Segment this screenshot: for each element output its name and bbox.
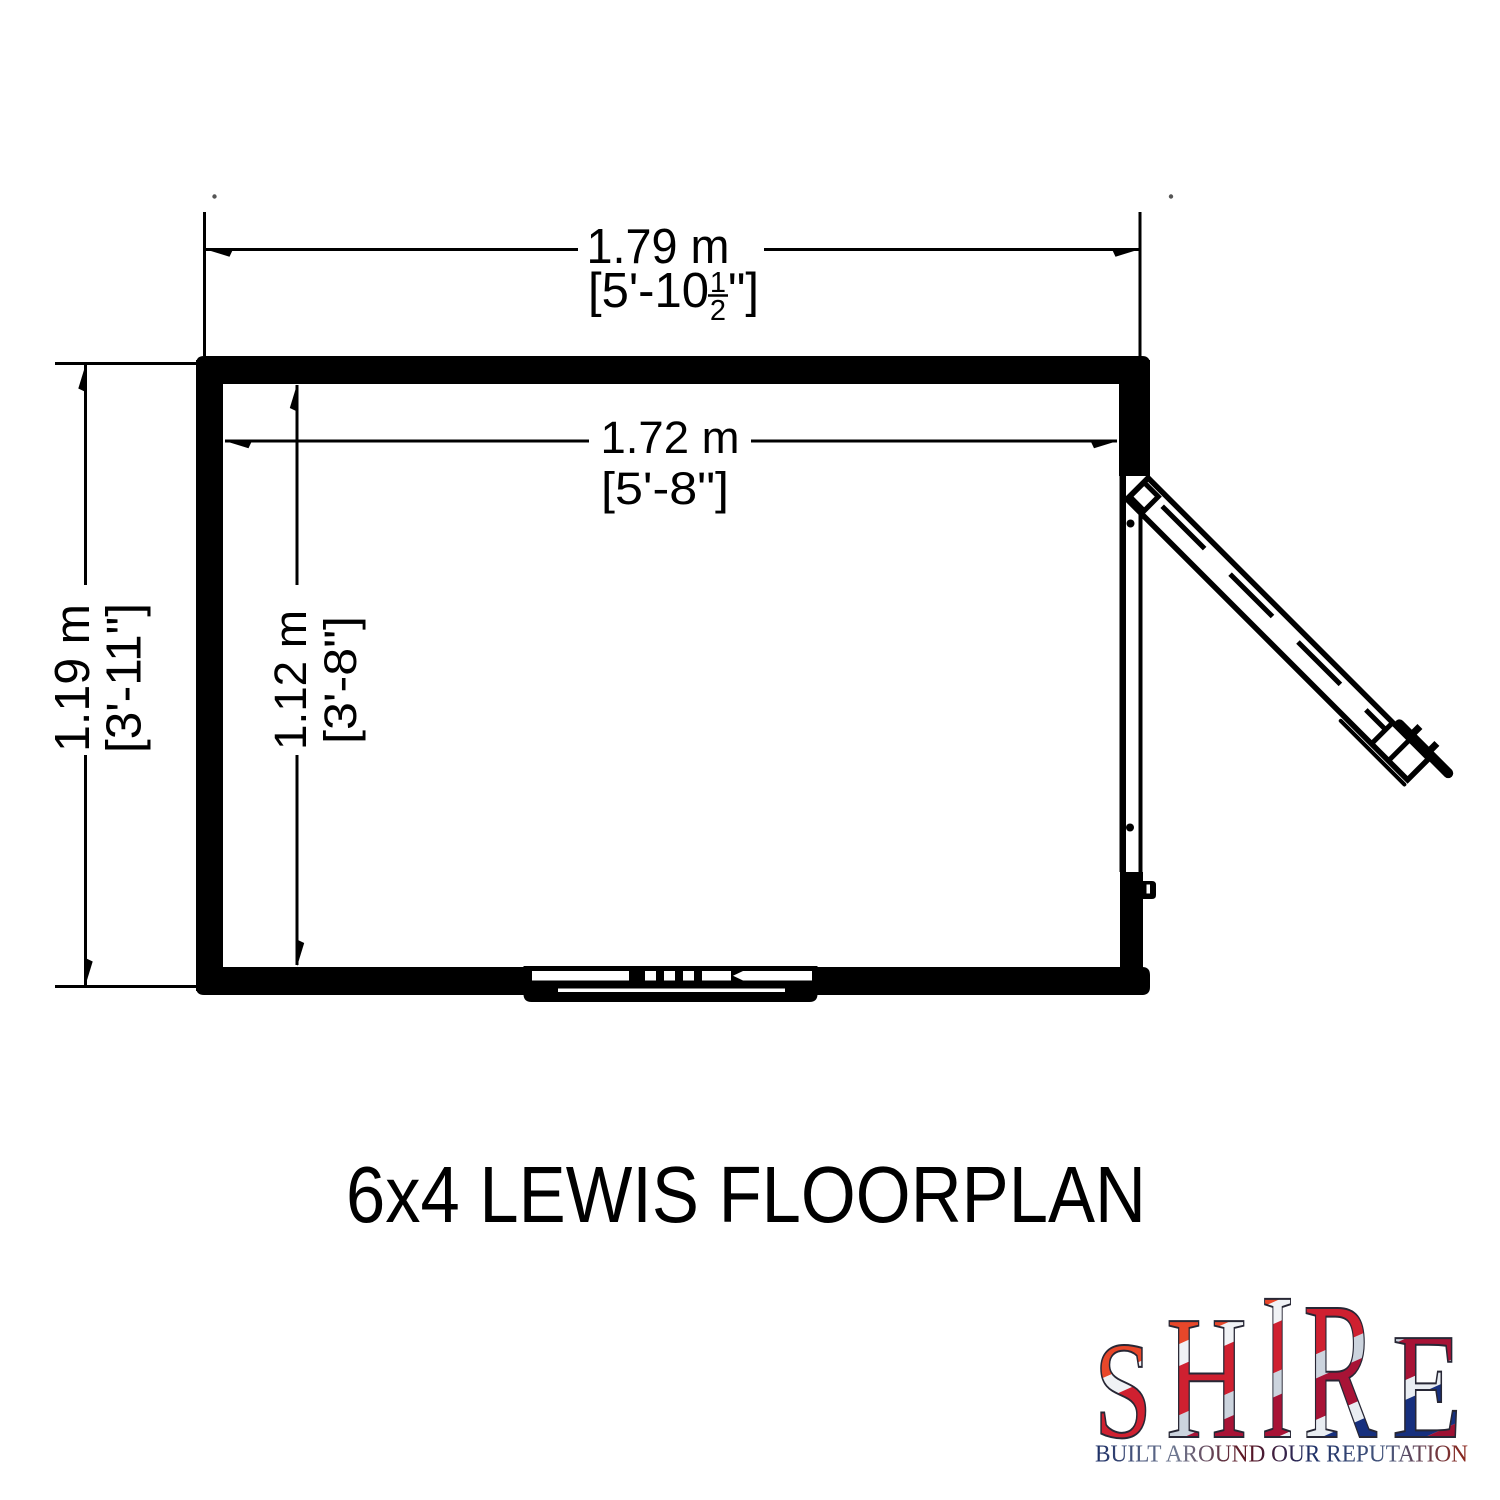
svg-text:BUILT AROUND OUR REPUTATION: BUILT AROUND OUR REPUTATION bbox=[1095, 1441, 1468, 1468]
svg-text:1.72 m: 1.72 m bbox=[601, 412, 740, 463]
svg-text:[3'-8"]: [3'-8"] bbox=[315, 616, 366, 744]
svg-text:1.19 m: 1.19 m bbox=[46, 604, 100, 752]
svg-text:2: 2 bbox=[710, 295, 726, 327]
svg-text:"]: "] bbox=[728, 264, 759, 318]
svg-text:1.12 m: 1.12 m bbox=[265, 610, 316, 750]
svg-text:[3'-11"]: [3'-11"] bbox=[98, 603, 152, 753]
svg-text:[5'-8"]: [5'-8"] bbox=[601, 463, 729, 514]
svg-text:6x4 LEWIS FLOORPLAN: 6x4 LEWIS FLOORPLAN bbox=[346, 1150, 1146, 1239]
svg-text:[5'-10: [5'-10 bbox=[588, 264, 709, 318]
